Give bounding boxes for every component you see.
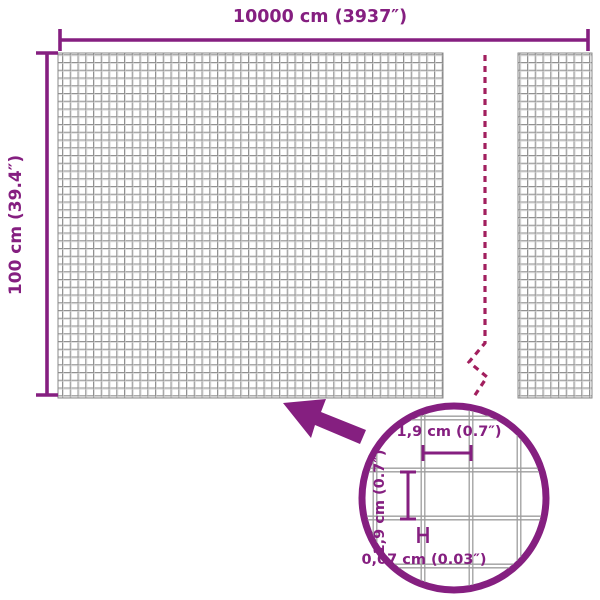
width-dimension-label: 10000 cm (3937″) [233, 7, 407, 27]
cell-height-label: 1,9 cm (0.7″) [372, 450, 388, 555]
height-dimension-line [36, 53, 58, 395]
height-dimension-label: 100 cm (39.4″) [6, 155, 26, 295]
diagram-canvas: 10000 cm (3937″) 100 cm (39.4″) [0, 0, 600, 600]
mesh-panel-main [58, 53, 443, 398]
width-dimension-line [60, 29, 588, 51]
cell-width-label: 1,9 cm (0.7″) [397, 424, 502, 440]
mesh-panel-fragment [518, 53, 592, 398]
length-break-dashed-line [469, 55, 487, 398]
product-dimension-diagram: 10000 cm (3937″) 100 cm (39.4″) [0, 0, 600, 600]
zoom-arrow-icon [283, 399, 366, 444]
detail-magnifier: 1,9 cm (0.7″) 1,9 cm (0.7″) 0,07 cm (0.0… [350, 400, 569, 600]
wire-thickness-label: 0,07 cm (0.03″) [361, 552, 486, 568]
